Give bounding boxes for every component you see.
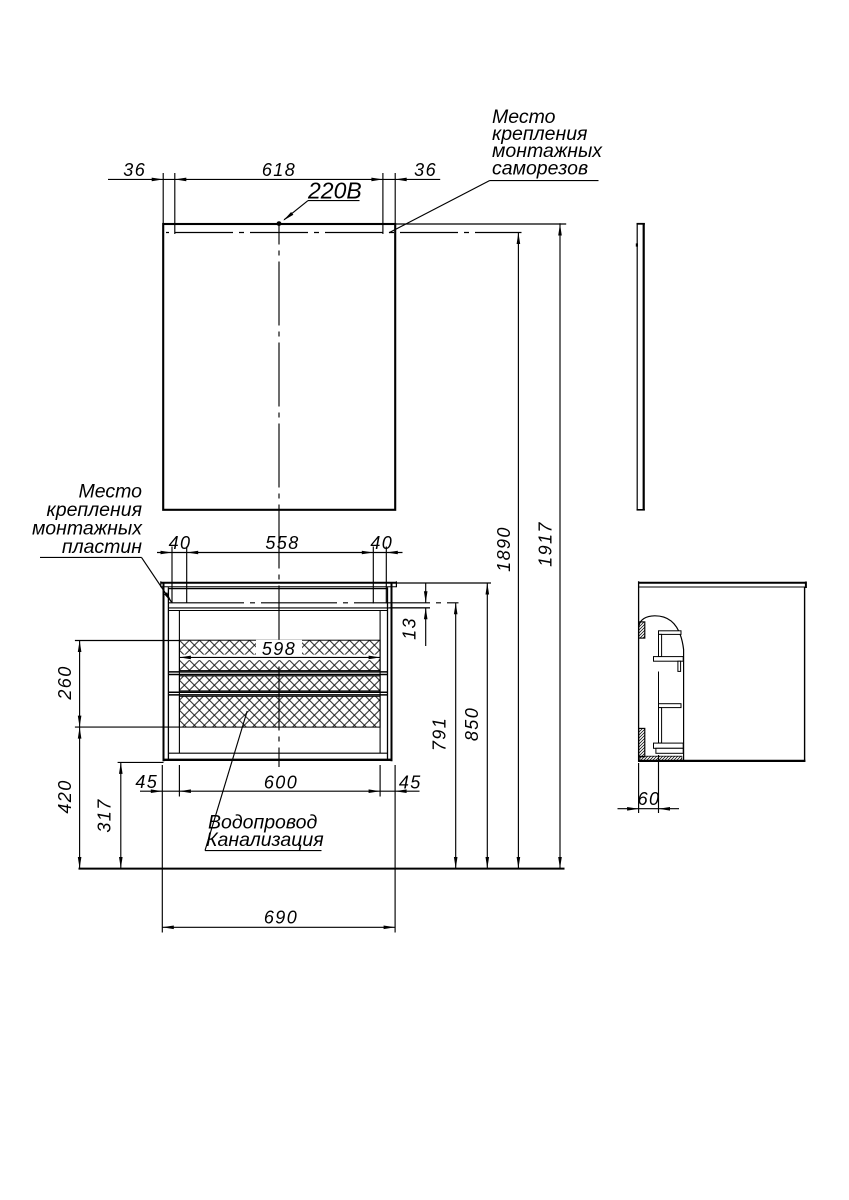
svg-text:598: 598 — [262, 639, 296, 659]
svg-text:36: 36 — [123, 160, 146, 180]
svg-text:850: 850 — [462, 707, 482, 741]
svg-text:пластин: пластин — [62, 536, 142, 558]
svg-text:40: 40 — [370, 533, 393, 553]
svg-text:558: 558 — [265, 533, 299, 553]
svg-text:13: 13 — [400, 617, 420, 640]
svg-text:791: 791 — [430, 717, 450, 751]
svg-text:45: 45 — [399, 772, 422, 792]
svg-text:690: 690 — [264, 908, 298, 928]
svg-text:40: 40 — [169, 533, 192, 553]
svg-text:317: 317 — [94, 798, 114, 832]
svg-text:36: 36 — [414, 160, 437, 180]
svg-text:саморезов: саморезов — [492, 157, 588, 179]
svg-text:1890: 1890 — [494, 526, 514, 572]
svg-text:260: 260 — [55, 665, 75, 700]
svg-text:45: 45 — [135, 772, 158, 792]
svg-text:1917: 1917 — [536, 521, 556, 567]
svg-text:220В: 220В — [307, 178, 362, 204]
svg-text:600: 600 — [264, 772, 298, 792]
svg-text:618: 618 — [262, 160, 296, 180]
svg-text:420: 420 — [55, 779, 75, 813]
svg-text:Канализация: Канализация — [206, 829, 324, 851]
svg-text:60: 60 — [638, 789, 661, 809]
